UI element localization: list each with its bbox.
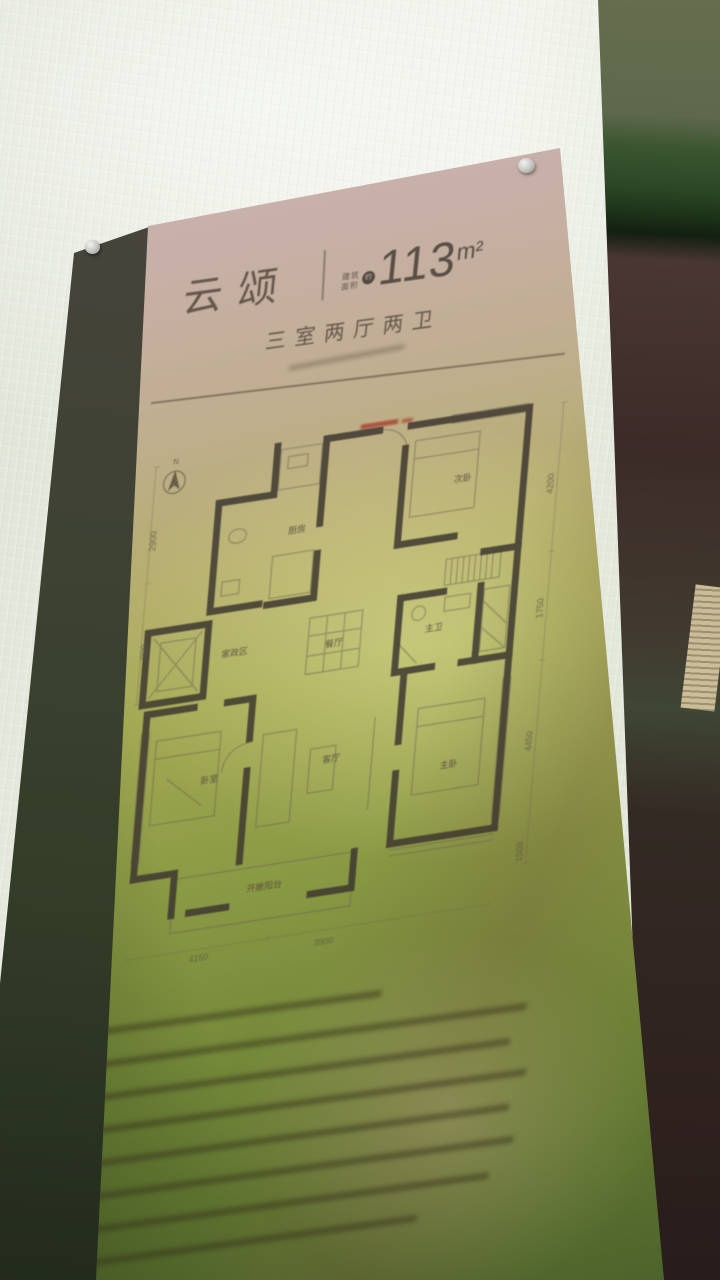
dim-left-900: 900 — [138, 644, 149, 661]
disclaimer-line — [84, 1003, 527, 1071]
screw-icon — [85, 240, 100, 254]
approx-badge: 约 — [362, 270, 376, 285]
room-label-master-bedroom: 主卧 — [439, 757, 458, 771]
room-label-utility: 家政区 — [221, 645, 248, 660]
screw-icon — [518, 158, 535, 173]
panel-title: 云颂 — [181, 243, 353, 324]
room-label-living: 客厅 — [322, 751, 341, 765]
developer-stamp — [361, 417, 413, 430]
disclaimer-line — [81, 1038, 510, 1104]
dim-bottom-3900: 3900 — [313, 935, 333, 948]
dim-right-4450: 4450 — [523, 730, 534, 752]
room-label-bedroom3: 卧室 — [200, 772, 219, 786]
room-label-kitchen: 厨房 — [288, 522, 307, 536]
photo-of-floorplan-sign: 云颂 建筑 面积 约 113 m² 三室两厅两卫 — [0, 0, 720, 1280]
disclaimer-line — [68, 1172, 489, 1237]
room-label-bedroom2: 次卧 — [454, 471, 473, 485]
area-value: 113 — [376, 235, 459, 294]
area-unit: m² — [456, 235, 485, 266]
dim-right-4200: 4200 — [545, 473, 556, 495]
floor-plan-drawing: N — [110, 388, 575, 978]
dim-right-1750: 1750 — [534, 597, 545, 619]
dim-left-2900: 2900 — [147, 530, 158, 552]
floor-plan-thin-lines — [124, 403, 534, 941]
north-arrow-icon: N — [163, 456, 188, 496]
disclaimer-text-blurred — [62, 967, 546, 1280]
floor-plan-walls — [124, 407, 530, 923]
panel-content: 云颂 建筑 面积 约 113 m² 三室两厅两卫 — [97, 146, 578, 1280]
area-prefix-bottom: 面积 — [341, 280, 360, 292]
room-label-balcony: 开敞阳台 — [246, 878, 282, 895]
area-prefix: 建筑 面积 — [341, 270, 361, 292]
dim-right-1500: 1500 — [514, 841, 525, 863]
dim-bottom-4150: 4150 — [188, 952, 208, 965]
compass-label: N — [173, 457, 180, 467]
disclaimer-line — [78, 1068, 527, 1137]
disclaimer-line — [74, 1104, 509, 1171]
room-label-master-bath: 主卫 — [425, 620, 444, 634]
disclaimer-line — [71, 1136, 514, 1204]
room-label-dining: 餐厅 — [325, 636, 344, 650]
area-figure: 建筑 面积 约 113 m² — [340, 231, 485, 299]
